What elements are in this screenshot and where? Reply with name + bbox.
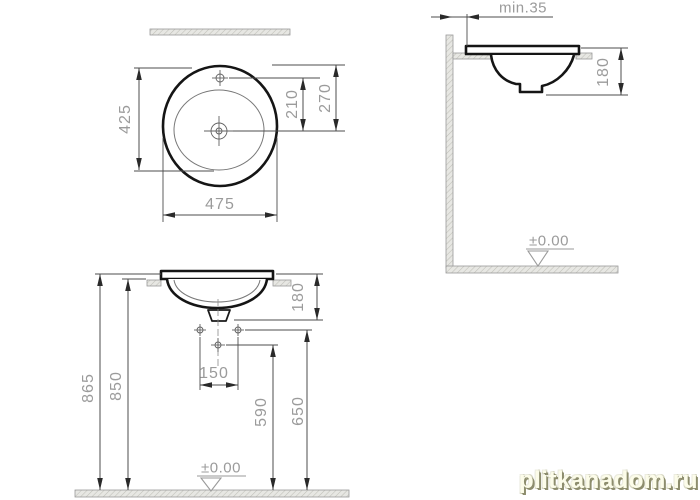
dim-label-width: 475 (205, 197, 235, 213)
top-view (134, 29, 345, 222)
dim-label-depth: 425 (118, 104, 134, 134)
bowl-front-outer (167, 279, 267, 308)
dim-label-edge-to-drain: 270 (318, 83, 334, 113)
dim-label-tap-hole-spacing: 150 (199, 366, 229, 382)
floor-section (446, 266, 618, 273)
basin-rim-section (466, 46, 579, 54)
dim-label-total-height: 865 (81, 373, 97, 403)
dim-label-bowl-depth-side: 180 (596, 57, 612, 87)
floor-level-mark-side (526, 249, 574, 266)
dim-label-fixing-height: 650 (291, 396, 307, 426)
floor-level-label-front: ±0.00 (201, 461, 241, 476)
floor-elevation (75, 490, 349, 497)
wall-section (446, 35, 453, 268)
floor-level-mark-front (197, 476, 246, 491)
countertop-right (273, 280, 291, 286)
counter-edge-bar (150, 29, 290, 35)
drain-stub (208, 310, 230, 321)
dim-label-counter-height: 850 (109, 371, 125, 401)
dim-label-bowl-depth-front: 180 (291, 282, 307, 312)
dim-850 (122, 279, 146, 490)
dim-label-tap-to-drain: 210 (285, 89, 301, 119)
drain-point (211, 338, 225, 352)
technical-drawing-canvas: 425 210 270 475 min.35 180 ±0.00 865 850… (0, 0, 700, 500)
watermark: plitkanadom.ru (519, 467, 698, 495)
floor-level-label-side: ±0.00 (529, 234, 569, 249)
basin-rim-front (161, 271, 273, 279)
dim-label-wall-clearance: min.35 (499, 1, 547, 16)
fixing-hole-right (232, 324, 244, 336)
countertop-left (147, 280, 161, 286)
dim-label-drain-height: 590 (254, 397, 270, 427)
bowl-section (491, 55, 574, 92)
fixing-hole-left (194, 324, 206, 336)
